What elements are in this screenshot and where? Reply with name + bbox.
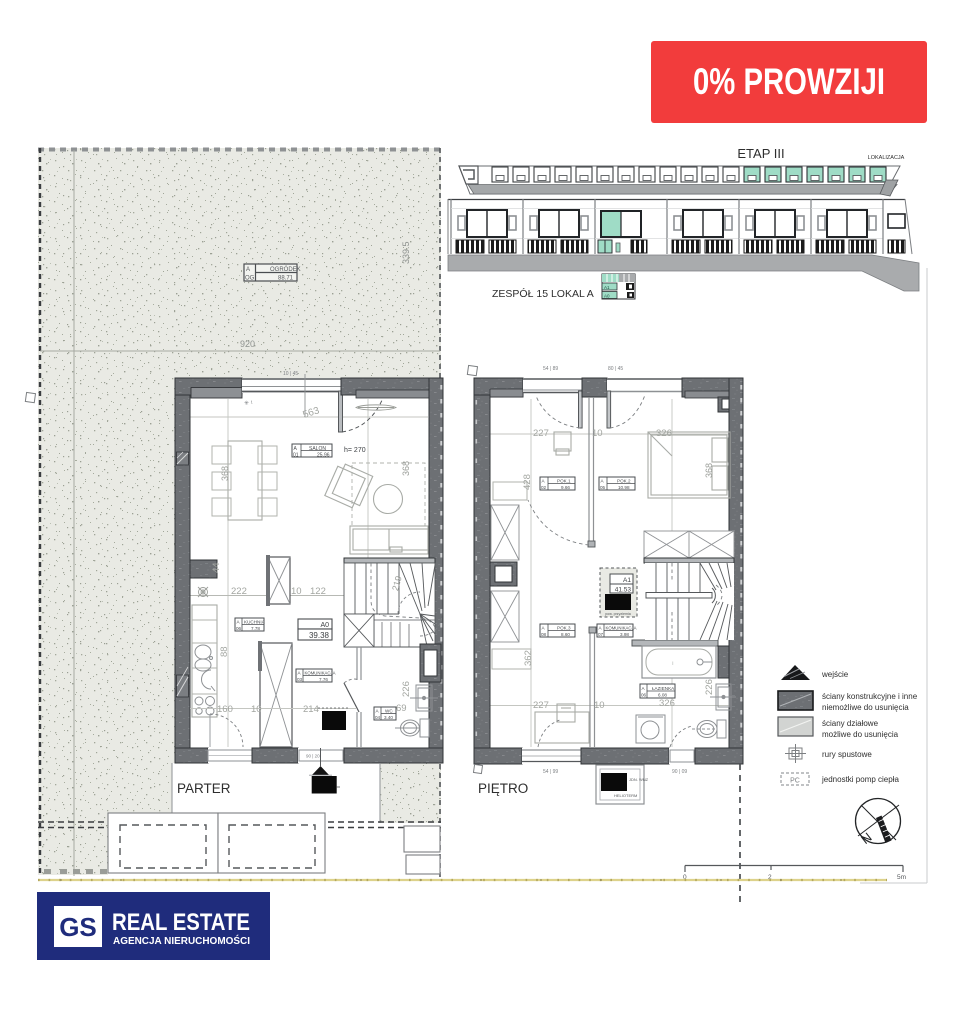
svg-text:05: 05 [600,485,606,490]
svg-text:01: 01 [293,453,299,459]
svg-text:A1: A1 [623,577,631,584]
svg-text:88: 88 [219,646,230,657]
svg-text:06: 06 [236,626,242,631]
svg-text:0% PROWZIJI: 0% PROWZIJI [693,61,885,102]
svg-text:9.66: 9.66 [561,485,570,490]
svg-text:KOMUNIKACJA: KOMUNIKACJA [305,671,336,676]
svg-text:326: 326 [659,698,675,709]
svg-text:10 | 45: 10 | 45 [283,371,298,377]
svg-text:5m: 5m [897,874,906,881]
svg-text:ZESPÓŁ 15 LOKAL A: ZESPÓŁ 15 LOKAL A [492,287,594,300]
svg-text:368: 368 [704,463,714,478]
svg-text:POK.2: POK.2 [617,479,631,484]
svg-text:69: 69 [396,703,407,714]
svg-text:ściany konstrukcyjne i inne: ściany konstrukcyjne i inne [822,692,918,701]
svg-text:80 | 45: 80 | 45 [608,366,623,372]
svg-text:41.53: 41.53 [615,587,632,594]
svg-text:10: 10 [291,586,302,597]
svg-text:jednostki pomp ciepła: jednostki pomp ciepła [821,775,899,784]
svg-text:90 | 20: 90 | 20 [306,754,320,759]
svg-text:222: 222 [231,586,247,597]
svg-text:920: 920 [240,339,255,349]
svg-text:10: 10 [251,704,262,715]
svg-text:7.78: 7.78 [251,626,260,631]
svg-text:7.76: 7.76 [319,677,328,682]
svg-text:10: 10 [592,428,603,439]
svg-text:04: 04 [375,715,381,720]
svg-text:A0: A0 [604,294,610,299]
svg-text:6.08: 6.08 [658,693,667,698]
svg-text:25.96: 25.96 [317,453,330,459]
svg-text:54 | 89: 54 | 89 [543,366,558,372]
svg-text:A0: A0 [320,622,329,629]
svg-text:HELIOTERM: HELIOTERM [614,793,637,798]
svg-text:339.5: 339.5 [401,241,411,264]
svg-text:8.60: 8.60 [561,632,570,637]
svg-text:214: 214 [303,704,319,715]
svg-text:rury spustowe: rury spustowe [822,750,872,759]
svg-text:GS: GS [59,912,97,942]
svg-text:PARTER: PARTER [177,781,231,796]
svg-text:możliwe do usunięcia: możliwe do usunięcia [822,730,899,739]
svg-text:pow. przyziemia: pow. przyziemia [605,612,631,616]
svg-text:368: 368 [220,466,230,481]
svg-text:A1: A1 [604,285,610,290]
svg-text:07: 07 [598,632,604,637]
svg-text:POK.3: POK.3 [557,626,571,631]
svg-text:SALON: SALON [309,446,326,452]
svg-text:ściany działowe: ściany działowe [822,719,879,728]
svg-text:niemożliwe do usunięcia: niemożliwe do usunięcia [822,703,909,712]
svg-text:06: 06 [641,693,647,698]
svg-text:PC: PC [790,778,800,785]
svg-text:WC: WC [385,709,393,714]
svg-text:ŁAZIENKA: ŁAZIENKA [652,686,675,691]
svg-text:AGENCJA NIERUCHOMOŚCI: AGENCJA NIERUCHOMOŚCI [113,934,250,947]
svg-text:OG: OG [245,276,255,282]
svg-text:A: A [246,267,250,273]
svg-text:90 | 09: 90 | 09 [672,769,687,775]
svg-text:LOKALIZACJA: LOKALIZACJA [868,155,905,161]
svg-text:08: 08 [541,632,547,637]
svg-text:✳ ¹: ✳ ¹ [244,400,253,407]
svg-text:368: 368 [401,461,411,476]
svg-text:REAL ESTATE: REAL ESTATE [112,909,250,936]
svg-text:88.71: 88.71 [278,276,294,282]
svg-text:OGRÓDEK: OGRÓDEK [270,266,301,273]
svg-text:10.98: 10.98 [618,485,630,490]
svg-text:122: 122 [310,586,326,597]
svg-text:wejście: wejście [821,670,849,679]
svg-text:03: 03 [297,677,303,682]
svg-text:POK.1: POK.1 [557,479,571,484]
svg-text:54 | 99: 54 | 99 [543,769,558,775]
svg-text:428: 428 [522,474,533,490]
svg-text:ETAP III: ETAP III [737,146,784,161]
svg-text:PIĘTRO: PIĘTRO [478,781,528,796]
svg-text:02: 02 [541,485,547,490]
svg-text:3.98: 3.98 [620,632,629,637]
svg-text:226: 226 [704,679,715,695]
svg-text:44: 44 [211,562,222,573]
svg-text:362: 362 [523,650,534,666]
svg-text:227: 227 [533,428,549,439]
svg-text:3.40: 3.40 [384,715,393,720]
svg-text:10: 10 [594,700,605,711]
svg-text:KOMUNIKACJA: KOMUNIKACJA [606,626,637,631]
svg-text:KUCHNIA: KUCHNIA [244,620,266,625]
svg-text:39.38: 39.38 [309,631,330,640]
svg-text:227: 227 [533,700,549,711]
svg-text:160: 160 [217,704,233,715]
svg-text:h= 270: h= 270 [344,447,366,454]
svg-text:JDN. WNZ: JDN. WNZ [629,777,649,782]
svg-text:226: 226 [401,681,412,697]
svg-text:326: 326 [656,428,672,439]
